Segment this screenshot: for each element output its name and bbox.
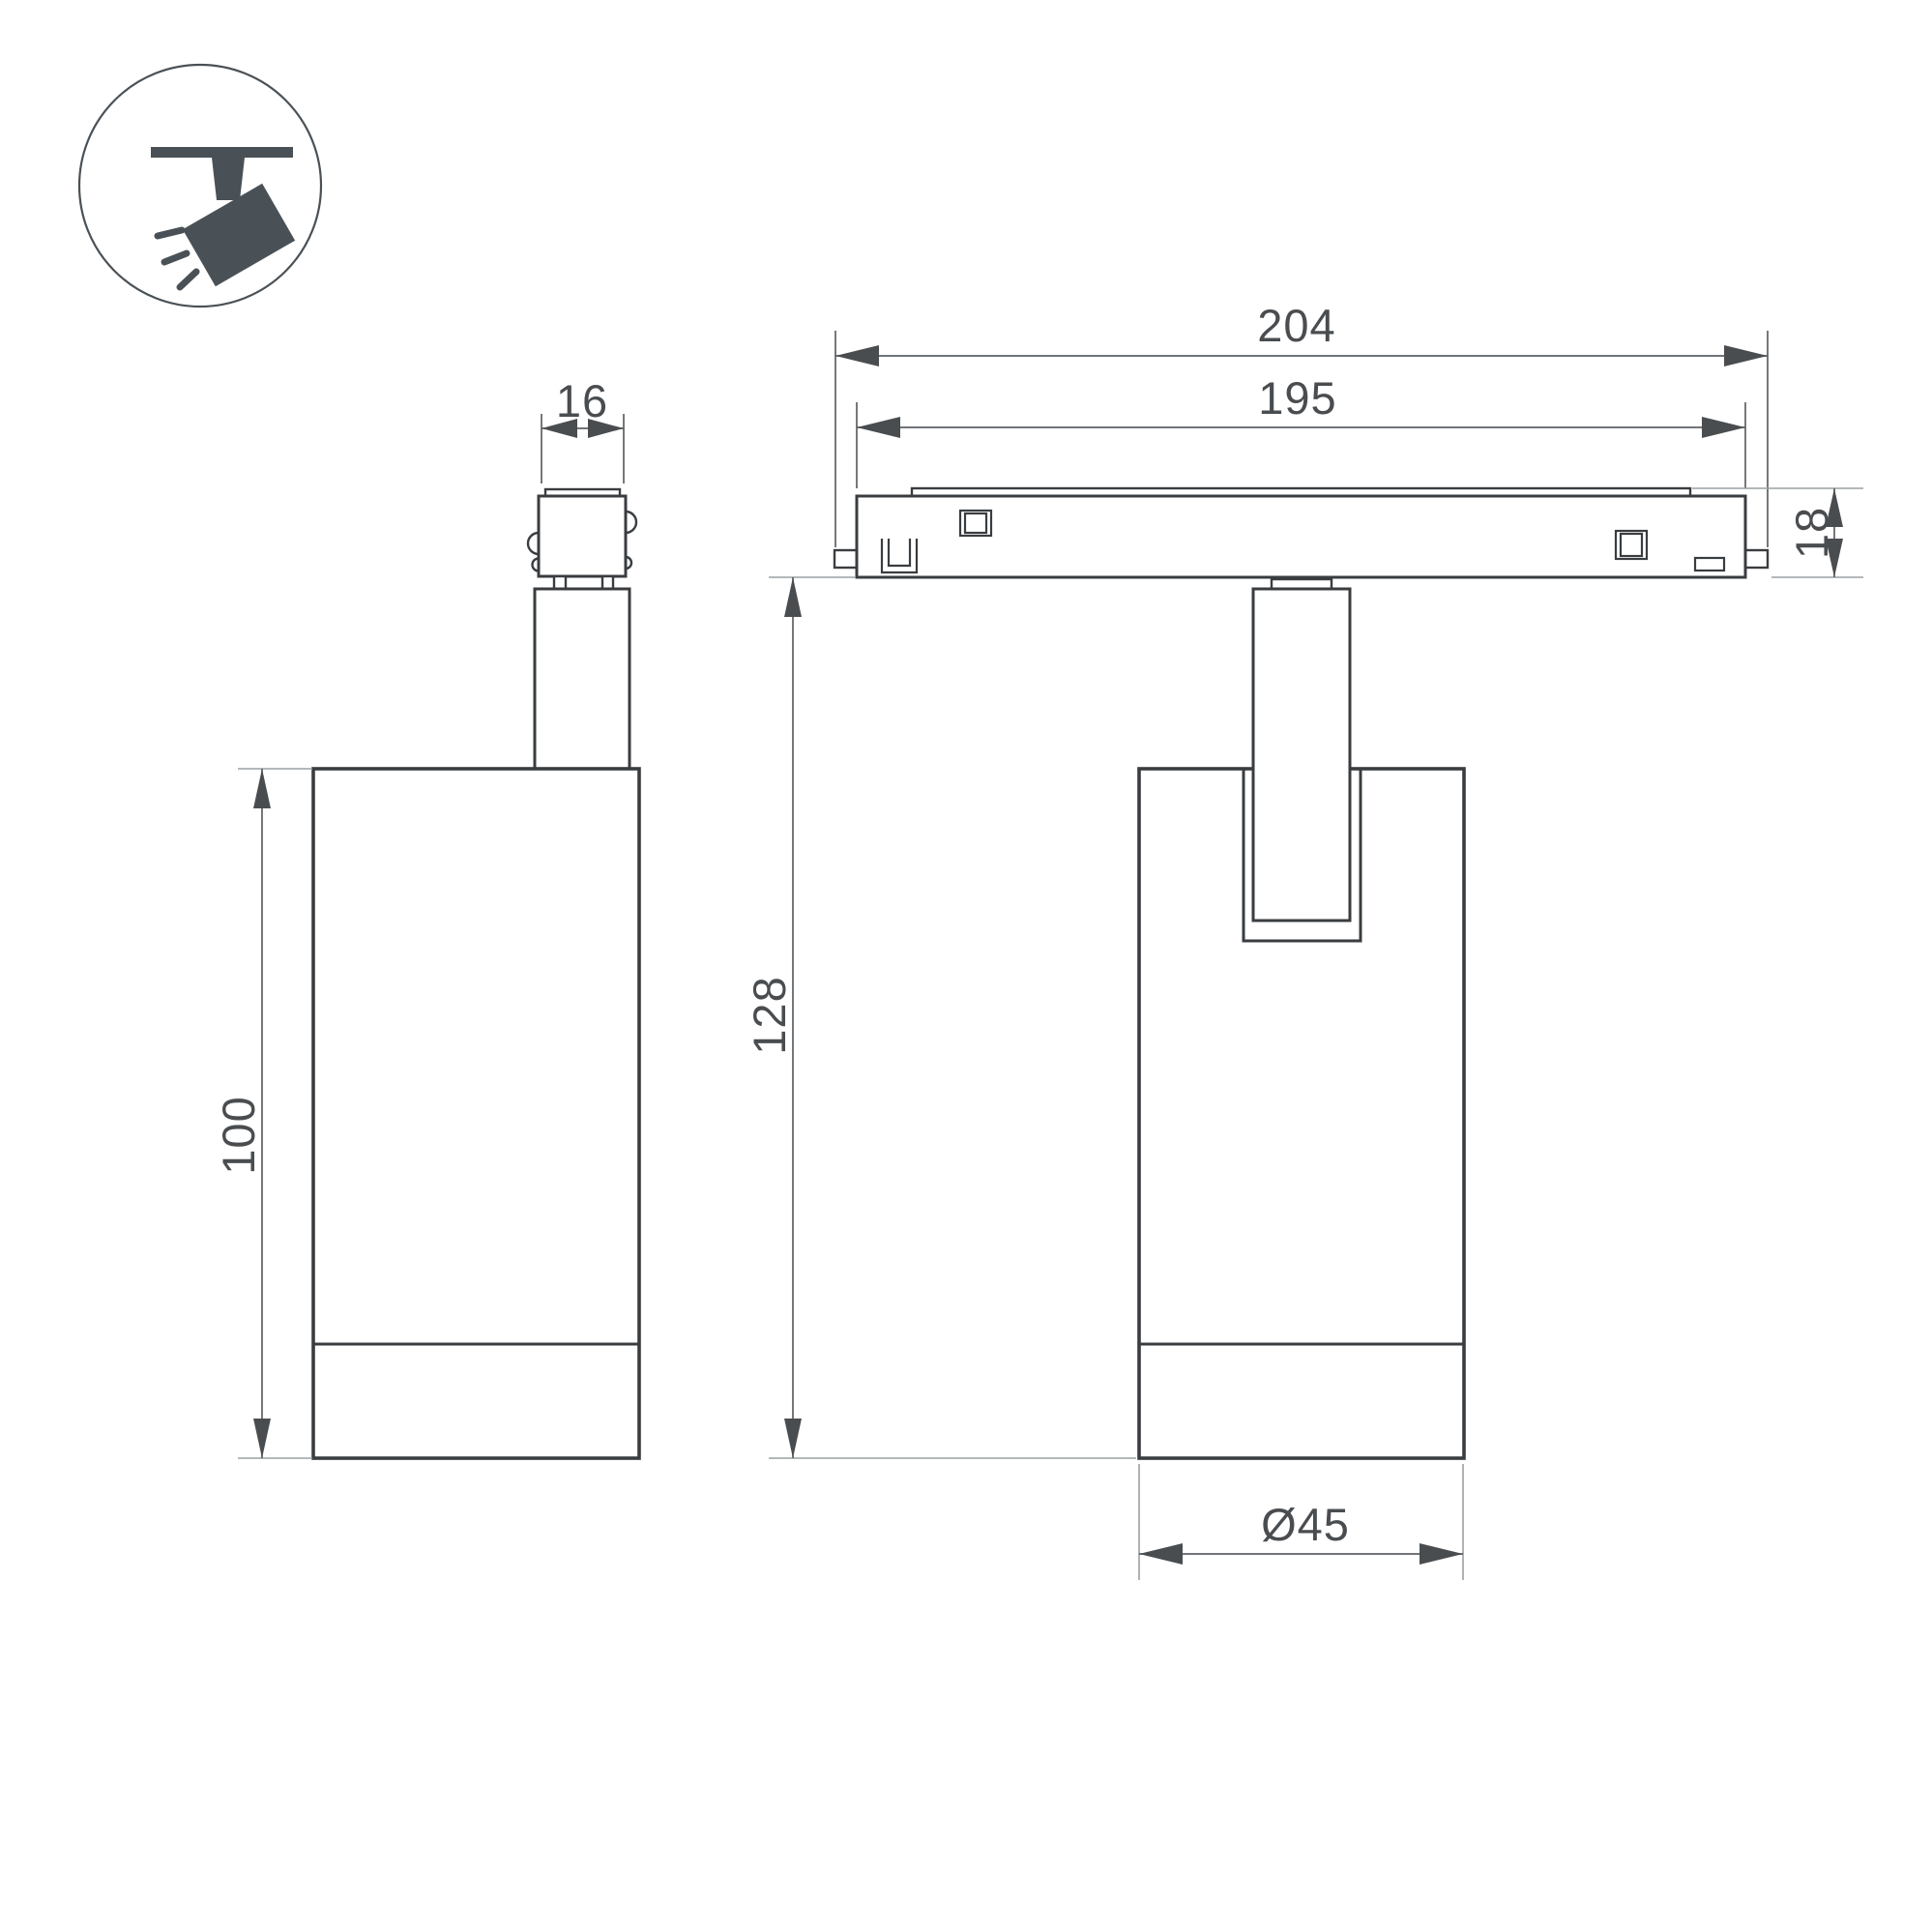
dim-label-204: 204 (1257, 300, 1335, 351)
side-stem (535, 589, 629, 769)
side-pivot-foot-left (554, 576, 566, 589)
dim-label-100: 100 (213, 1096, 264, 1174)
front-view: 204 195 (744, 300, 1863, 1580)
dim-label-diameter: Ø45 (1261, 1499, 1350, 1550)
icon-circle (79, 65, 321, 307)
front-stem (1253, 589, 1350, 921)
dim-label-16: 16 (556, 375, 608, 426)
dim-label-195: 195 (1258, 372, 1336, 424)
technical-drawing: 16 100 (0, 0, 1932, 1932)
dim-label-128: 128 (744, 976, 795, 1054)
track-end-tab-right (1745, 550, 1768, 568)
track-end-tab-left (834, 550, 857, 568)
drawing-canvas: 16 100 (0, 0, 1932, 1932)
spotlight-icon (79, 65, 321, 307)
side-connector-box (539, 496, 626, 576)
side-pivot-foot-right (602, 576, 613, 589)
dim-track-inner: 195 (857, 372, 1745, 488)
dim-overall-height: 128 (744, 577, 1136, 1458)
icon-mount-stem (212, 158, 245, 200)
side-view: 16 100 (213, 375, 639, 1458)
dim-connector-width: 16 (542, 375, 624, 483)
dim-label-18: 18 (1786, 507, 1837, 559)
dim-body-height: 100 (213, 769, 312, 1458)
dim-body-diameter: Ø45 (1139, 1464, 1463, 1580)
side-lamp-body (313, 769, 639, 1458)
icon-ceiling-bar (151, 147, 293, 158)
